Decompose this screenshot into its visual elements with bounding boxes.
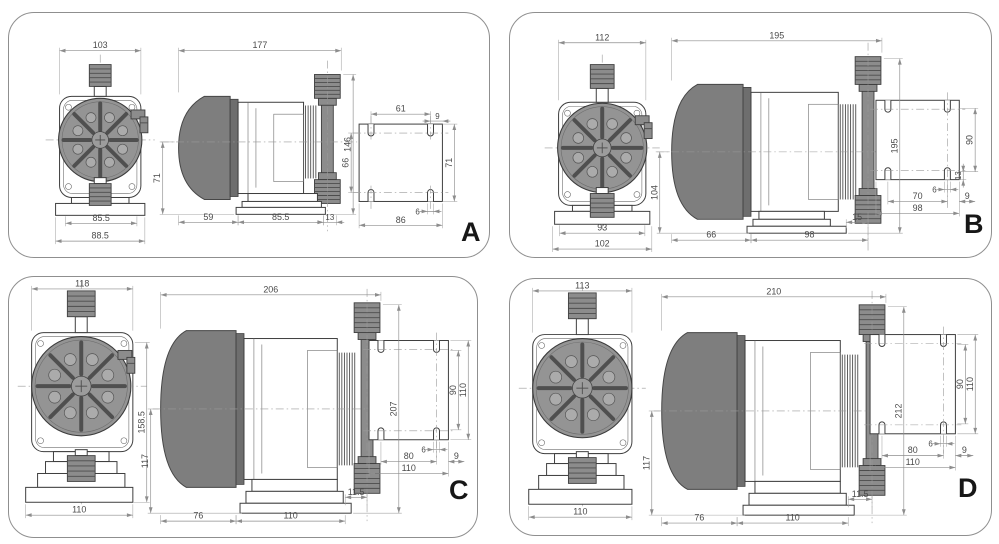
side-view [161,61,357,232]
dim-label: 9 [454,451,459,461]
dim-label: 6 [928,440,933,449]
dim-label: 90 [448,385,458,395]
dim-label: 110 [402,463,416,473]
dim-label: 66 [341,158,351,168]
front-view [46,55,155,221]
panel-b: 112931021951041956698159013670989 B [509,12,992,258]
dim-label: 6 [421,446,426,455]
dim-label: 207 [388,402,398,417]
dim-label: 110 [786,513,800,523]
panel-a: 10385.588.5177711465985.5136196671686 A [8,12,490,258]
dim-label: 80 [404,451,414,461]
dim-label: 59 [203,212,213,222]
dim-label: 88.5 [92,231,109,241]
panel-a-drawing: 10385.588.5177711465985.5136196671686 [9,13,489,257]
dim-label: 66 [706,230,716,240]
dim-label: 13 [325,213,334,222]
dim-label: 102 [595,239,610,249]
dim-label: 212 [893,403,903,418]
dim-label: 85.5 [93,213,110,223]
dim-label: 112 [595,32,609,42]
dim-label: 110 [573,507,587,517]
dim-label: 9 [965,191,970,201]
dim-label: 93 [597,223,607,233]
dim-label: 98 [913,203,923,213]
front-view [519,283,646,509]
front-view [545,55,660,230]
dim-label: 110 [965,377,975,391]
dim-label: 11.5 [852,489,869,499]
dim-label: 118 [75,278,89,288]
panel-d-drawing: 1131102101172127611011.5901106801109 [510,279,991,535]
dim-label: 103 [93,40,108,50]
dim-label: 13 [954,171,963,180]
mounting-plate-view [363,333,454,458]
panel-c-drawing: 118110158.52061172077611011.590110680110… [9,277,477,537]
dim-label: 71 [444,158,454,168]
panel-letter: D [958,475,978,502]
dim-label: 15 [852,212,862,222]
panel-letter: B [964,211,984,238]
dim-label: 6 [932,186,937,195]
dim-label: 86 [396,215,406,225]
panel-c: 118110158.52061172077611011.590110680110… [8,276,478,538]
panel-letter: A [461,219,481,246]
front-view [18,281,147,507]
dim-label: 177 [252,40,267,50]
dim-label: 117 [140,454,150,468]
dim-label: 206 [263,284,278,294]
panel-d-drawing: 1131102101172127611011.5901106801109 D [509,278,992,536]
dim-label: 158.5 [136,411,146,433]
dim-label: 98 [805,230,815,240]
dim-label: 76 [694,513,704,523]
mounting-plate-view [353,116,448,209]
mounting-plate-view [864,327,961,454]
dim-label: 110 [458,383,468,397]
dim-label: 195 [889,138,899,153]
dim-label: 71 [152,173,162,183]
dim-label: 6 [415,207,420,216]
dim-label: 110 [284,511,298,521]
dim-label: 117 [641,456,651,470]
dim-label: 113 [575,280,589,290]
dim-label: 104 [649,185,659,200]
panel-b-drawing: 112931021951041956698159013670989 [510,13,991,257]
dim-label: 76 [193,511,203,521]
drawing-sheet: 10385.588.5177711465985.5136196671686 A … [0,0,999,544]
dim-label: 85.5 [272,212,289,222]
dim-label: 110 [72,505,86,515]
dim-label: 90 [955,379,965,389]
dim-label: 90 [965,135,975,145]
dim-label: 110 [906,457,920,467]
dim-label: 210 [766,286,781,296]
panel-letter: C [449,477,469,504]
dim-label: 11.5 [348,487,365,497]
dim-label: 9 [962,445,967,455]
dim-label: 70 [913,191,923,201]
dim-label: 61 [396,104,406,114]
dim-label: 195 [769,30,784,40]
dim-label: 9 [435,112,440,121]
dim-label: 80 [908,445,918,455]
